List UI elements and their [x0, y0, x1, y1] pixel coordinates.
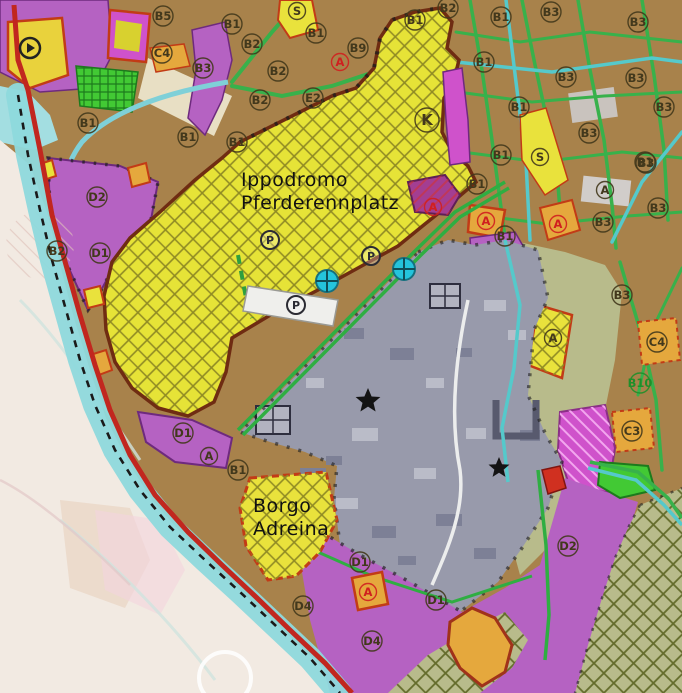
- small-parcel: [128, 163, 150, 187]
- zone-label-text: D4: [294, 599, 312, 613]
- parking-letter: P: [292, 299, 300, 312]
- sports-field-icon: [316, 270, 338, 292]
- zone-label-text: A: [554, 217, 563, 231]
- zone-label-text: D2: [88, 190, 106, 204]
- zone-label-text: B2: [270, 64, 287, 78]
- zone-label-text: E2: [305, 91, 321, 105]
- zone-label-text: D1: [174, 426, 192, 440]
- parking-icon: P: [261, 231, 279, 249]
- parking-icon: P: [362, 247, 380, 265]
- place-name-line: Pferderennplatz: [241, 192, 399, 214]
- zoning-map-canvas[interactable]: B5B1B2B3C4B1B1D2B2D1B1B2B2E2SB1B9AB1B2KB…: [0, 0, 682, 693]
- zone-label-text: B3: [630, 15, 647, 29]
- building-block: [398, 556, 416, 565]
- zone-label-text: A: [601, 183, 610, 197]
- zone-label-text: B1: [497, 229, 514, 243]
- building-block: [474, 548, 496, 559]
- building-block: [426, 378, 444, 388]
- zone-label-text: B3: [614, 288, 631, 302]
- building-block: [484, 300, 506, 311]
- zone-label-text: B2: [244, 37, 261, 51]
- building-block: [336, 498, 358, 509]
- sports-field-icon: [393, 258, 415, 280]
- zone-label-text: B1: [493, 10, 510, 24]
- zone-label-text: B3: [543, 5, 560, 19]
- zone-label-text: B3: [650, 201, 667, 215]
- zone-label-text: B2: [440, 1, 457, 15]
- zone-label-text: A: [336, 55, 345, 69]
- zone-label-text: B1: [493, 148, 510, 162]
- facility-inner: [114, 20, 142, 52]
- zone-label-text: B3: [195, 61, 212, 75]
- zone-label-text: S: [536, 150, 544, 164]
- zone-label-text: B2: [252, 93, 269, 107]
- place-name-line: Ippodromo: [241, 169, 348, 191]
- zone-label-text: B2: [49, 244, 66, 258]
- parking-letter: P: [367, 250, 375, 263]
- zone-label-text: A: [364, 585, 373, 599]
- building-block: [390, 348, 414, 360]
- zone-label-text: D1: [91, 246, 109, 260]
- small-parcel: [84, 286, 104, 308]
- building-block: [352, 428, 378, 441]
- zone-label-text: A: [549, 331, 558, 345]
- zone-label-text: B1: [407, 13, 424, 27]
- building-block: [372, 526, 396, 538]
- zone-label-text: B3: [628, 71, 645, 85]
- place-name-line: Adreina: [253, 518, 329, 540]
- green-grid-hatch: [76, 66, 138, 112]
- zone-label-text: B3: [638, 156, 655, 170]
- zone-label-text: B1: [308, 26, 325, 40]
- building-block: [414, 468, 436, 479]
- zone-label-text: B3: [558, 70, 575, 84]
- zoning-map: B5B1B2B3C4B1B1D2B2D1B1B2B2E2SB1B9AB1B2KB…: [0, 0, 682, 693]
- zone-label-text: A: [429, 200, 438, 214]
- zone-label-text: D4: [363, 634, 381, 648]
- zone-label-text: B1: [229, 135, 246, 149]
- parking-icon: P: [287, 296, 305, 314]
- zone-label-text: B1: [469, 177, 486, 191]
- zone-label-text: K: [421, 111, 434, 129]
- zone-label-text: A: [482, 214, 491, 228]
- zone-label-text: D2: [559, 539, 577, 553]
- place-name-line: Borgo: [253, 495, 311, 517]
- zone-label-text: B5: [155, 9, 172, 23]
- zone-label-text: S: [293, 4, 301, 18]
- zone-label-text: B1: [224, 17, 241, 31]
- zone-label-text: C4: [649, 335, 665, 349]
- zone-label-text: A: [205, 449, 214, 463]
- zone-label-text: C3: [624, 424, 640, 438]
- zone-label-text: B3: [581, 126, 598, 140]
- zone-label-text: B1: [80, 116, 97, 130]
- zone-label-text: B1: [511, 100, 528, 114]
- zone-label-text: B10: [628, 376, 653, 390]
- zone-label-text: C4: [154, 46, 170, 60]
- zone-label-text: B3: [656, 100, 673, 114]
- zone-label-text: B3: [595, 215, 612, 229]
- zone-label-text: B1: [476, 55, 493, 69]
- building-block: [466, 428, 486, 439]
- zone-label-text: D1: [427, 593, 445, 607]
- parking-letter: P: [266, 234, 274, 247]
- zone-label-text: B1: [230, 463, 247, 477]
- building-block: [306, 378, 324, 388]
- zone-label-text: B1: [180, 130, 197, 144]
- zone-label-text: B9: [350, 41, 367, 55]
- zone-label-text: D1: [351, 555, 369, 569]
